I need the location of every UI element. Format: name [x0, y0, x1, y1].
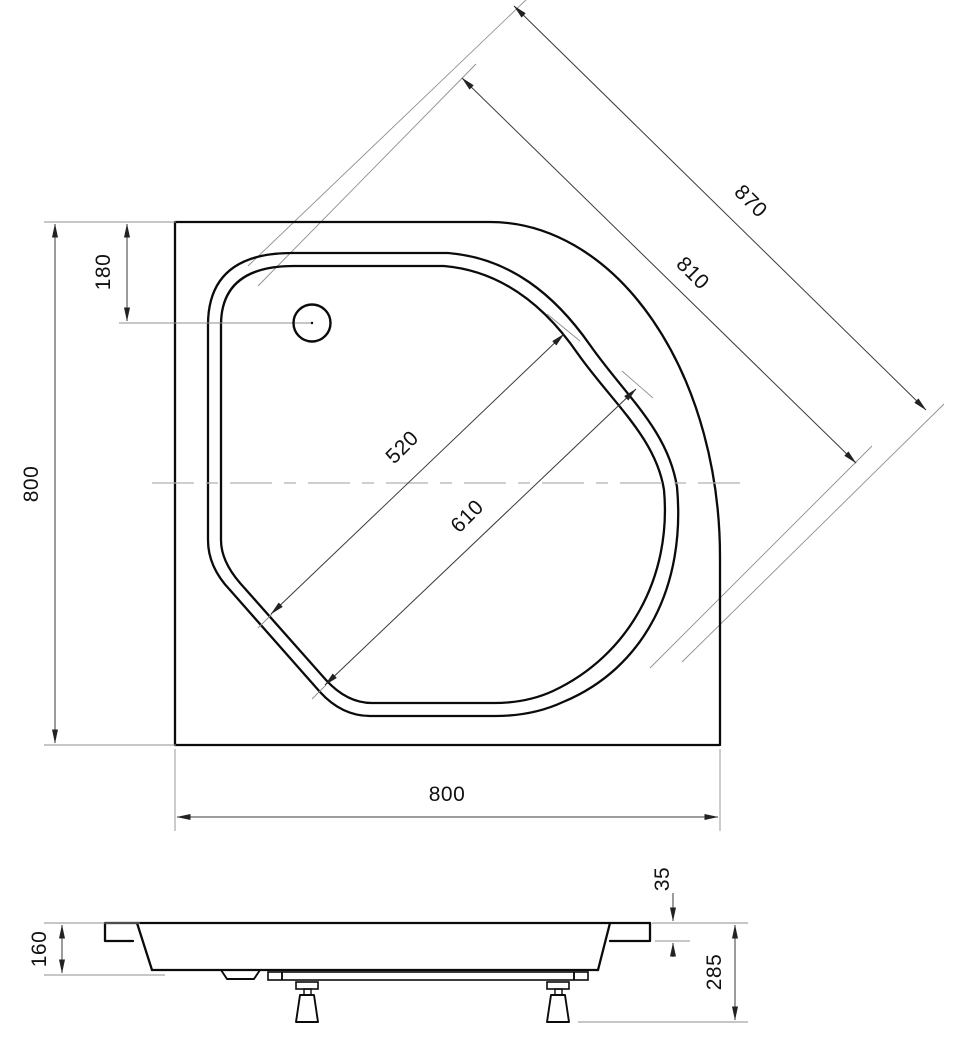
dim-label-285: 285 [703, 954, 726, 991]
dim-285-total-height: 285 [578, 925, 748, 1022]
dim-810-diagonal: 810 [462, 78, 856, 463]
side-view: 160 35 285 [28, 867, 748, 1022]
shower-tray-drawing: 800 180 870 810 520 610 [0, 0, 958, 1061]
side-tray-body [105, 923, 650, 979]
dim-label-520: 520 [381, 426, 423, 468]
dim-label-800-bottom: 800 [429, 783, 466, 806]
drain [119, 305, 331, 342]
dim-label-800-left: 800 [20, 466, 43, 503]
dim-label-160: 160 [28, 931, 51, 968]
dim-label-870: 870 [730, 180, 772, 222]
dim-520-basin: 520 [258, 314, 580, 628]
diagonal-extension-lines [248, 0, 944, 668]
dim-35-lip-height: 35 [651, 867, 748, 957]
dim-label-180: 180 [92, 254, 115, 291]
tray-rim-outer-line [208, 253, 678, 716]
dim-label-35: 35 [651, 867, 674, 891]
tray-rim-inner-line [221, 266, 665, 703]
dim-180-drain: 180 [92, 224, 127, 321]
dim-610-basin: 610 [312, 371, 653, 699]
drain-center-dot [311, 322, 313, 324]
side-drain-boss [221, 970, 260, 979]
top-view: 800 180 870 810 520 610 [20, 0, 944, 831]
dim-label-810: 810 [672, 252, 714, 294]
technical-drawing-page: 800 180 870 810 520 610 [0, 0, 958, 1061]
side-frame-rail [268, 972, 588, 980]
side-foot-right [547, 982, 569, 1022]
side-foot-left [296, 982, 318, 1022]
dim-label-610: 610 [446, 495, 488, 537]
dim-800-bottom: 800 [175, 749, 720, 831]
